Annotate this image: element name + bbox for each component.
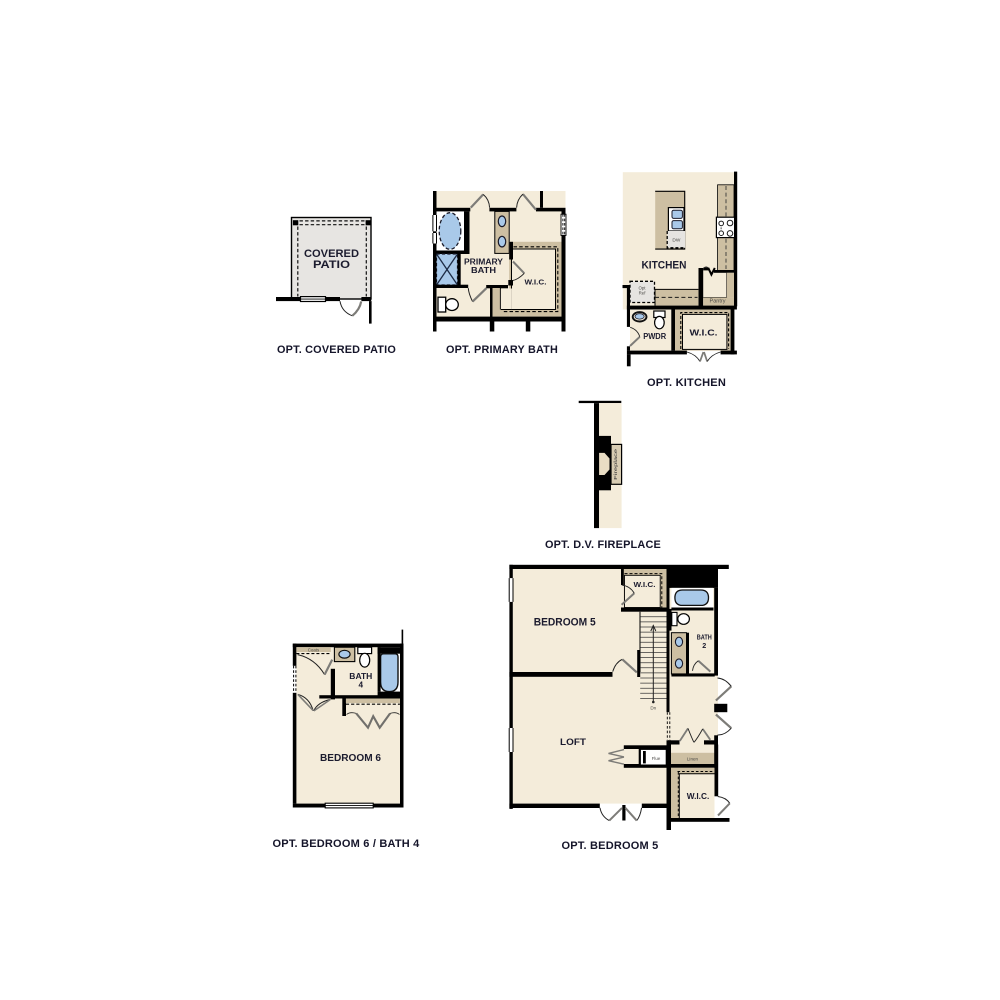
svg-text:OPT. COVERED PATIO: OPT. COVERED PATIO [277,344,396,356]
svg-text:PWDR: PWDR [643,332,666,341]
svg-text:Fireplace: Fireplace [613,448,619,479]
svg-text:Pantry: Pantry [710,298,727,304]
svg-text:OPT. BEDROOM 5: OPT. BEDROOM 5 [562,840,659,852]
svg-text:Ref: Ref [639,291,647,296]
svg-text:BEDROOM 6: BEDROOM 6 [320,753,381,764]
svg-text:OPT. BEDROOM 6 / BATH 4: OPT. BEDROOM 6 / BATH 4 [273,838,421,850]
svg-text:W.I.C.: W.I.C. [525,278,547,287]
svg-text:Coats: Coats [308,648,320,653]
svg-text:PATIO: PATIO [313,259,350,271]
svg-text:OPT. PRIMARY BATH: OPT. PRIMARY BATH [446,344,558,356]
svg-text:DW: DW [672,238,680,244]
svg-text:Linen: Linen [687,757,699,762]
svg-text:W.I.C.: W.I.C. [690,329,718,338]
svg-text:BATH: BATH [349,671,372,681]
svg-text:Dn: Dn [650,706,656,711]
svg-text:W.I.C.: W.I.C. [634,580,656,589]
svg-text:BEDROOM 5: BEDROOM 5 [534,616,596,628]
svg-text:OPT. D.V. FIREPLACE: OPT. D.V. FIREPLACE [545,539,661,551]
svg-text:BATH: BATH [471,265,496,275]
svg-text:KITCHEN: KITCHEN [642,260,687,272]
svg-text:2: 2 [702,641,706,650]
svg-text:OPT. KITCHEN: OPT. KITCHEN [647,377,726,389]
svg-text:W.I.C.: W.I.C. [687,792,710,801]
svg-text:Flue: Flue [652,756,661,761]
svg-text:4: 4 [359,681,364,690]
svg-text:LOFT: LOFT [560,737,586,748]
